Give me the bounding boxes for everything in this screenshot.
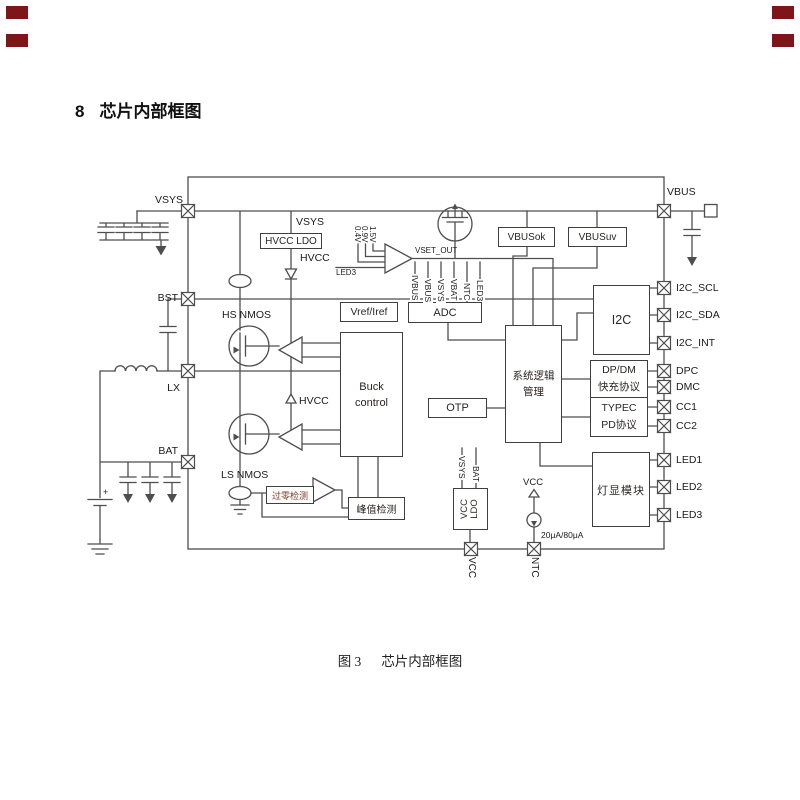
vset-comparator <box>385 244 412 273</box>
pin-vbus <box>658 205 671 218</box>
block-label: I2C <box>612 313 631 327</box>
label-adc-in-ivbus: IVBUS <box>410 274 420 302</box>
label-vccldo-in-vsys: VSYS <box>457 455 467 480</box>
block-label: Vref/Iref <box>351 306 388 318</box>
pin-label-bat: BAT <box>141 445 178 457</box>
pin-vcc <box>465 543 478 556</box>
pin-label-i2c-int: I2C_INT <box>676 337 715 349</box>
pin-dpc <box>658 365 671 378</box>
pin-label-led2: LED2 <box>676 481 702 493</box>
pin-cc2 <box>658 420 671 433</box>
block-i2c: I2C <box>593 285 650 355</box>
block-vcc-ldo: VCC LDO <box>453 488 488 530</box>
pin-led2 <box>658 481 671 494</box>
block-label: ADC <box>433 307 456 319</box>
label-hvcc-ldo-out: HVCC <box>300 252 330 264</box>
label-vccldo-in-bat: BAT <box>471 465 481 483</box>
block-typec-pd-protocol: TYPEC PD协议 <box>590 397 648 437</box>
ls-current-sense <box>229 487 251 500</box>
block-label: 灯显模块 <box>597 482 645 498</box>
label-vset-out: VSET_OUT <box>415 246 457 255</box>
pin-lx <box>182 365 195 378</box>
pin-label-i2c-scl: I2C_SCL <box>676 282 719 294</box>
pin-dmc <box>658 381 671 394</box>
figure-number: 图 3 <box>338 654 362 669</box>
block-label: HVCC LDO <box>265 236 317 247</box>
block-label: 峰值检测 <box>357 501 397 516</box>
pin-label-led3: LED3 <box>676 509 702 521</box>
pin-label-led1: LED1 <box>676 454 702 466</box>
block-hvcc-ldo: HVCC LDO <box>260 233 322 249</box>
hvcc-net-marker <box>286 394 296 403</box>
pin-led1 <box>658 454 671 467</box>
label-hvcc-ldo-in: VSYS <box>296 216 324 228</box>
block-label: PD协议 <box>601 417 637 434</box>
label-adc-in-vbat: VBAT <box>449 278 459 302</box>
label-hvcc-rail: HVCC <box>299 395 329 407</box>
label-adc-in-vsys: VSYS <box>436 278 446 303</box>
block-label: 过零检测 <box>272 489 308 502</box>
block-label: 系统逻辑 <box>513 368 555 384</box>
label-vref-15: 1.5V <box>368 226 377 242</box>
ground-arrow <box>156 246 167 256</box>
block-peak-detect: 峰值检测 <box>348 497 405 520</box>
pin-label-cc1: CC1 <box>676 401 697 413</box>
pin-label-vcc: VCC <box>465 557 477 578</box>
pin-cc1 <box>658 401 671 414</box>
pin-ntc <box>528 543 541 556</box>
pin-bst <box>182 293 195 306</box>
pin-i2c-int <box>658 337 671 350</box>
pin-label-dmc: DMC <box>676 381 700 393</box>
inductor <box>115 366 157 371</box>
block-label: VBUSok <box>508 232 546 243</box>
pin-label-bst: BST <box>141 292 178 304</box>
block-system-logic: 系统逻辑 管理 <box>505 325 562 443</box>
pin-i2c-sda <box>658 309 671 322</box>
figure-caption-text: 芯片内部框图 <box>381 654 462 669</box>
pin-label-ntc: NTC <box>528 557 540 578</box>
block-buck-control: Buck control <box>340 332 403 457</box>
pin-i2c-scl <box>658 282 671 295</box>
label-adc-in-led3: LED3 <box>475 279 485 302</box>
pin-bat <box>182 456 195 469</box>
block-label: VBUSuv <box>579 232 617 243</box>
pin-vsys <box>182 205 195 218</box>
ground-arrow <box>123 494 133 503</box>
block-label: DP/DM <box>602 362 636 379</box>
pin-label-vsys: VSYS <box>146 194 183 206</box>
pin-label-i2c-sda: I2C_SDA <box>676 309 720 321</box>
block-label: 快充协议 <box>598 379 640 396</box>
block-label: Buck <box>359 379 383 395</box>
block-label: control <box>355 395 388 411</box>
label-led3-select: LED3 <box>336 268 356 277</box>
pin-label-vbus: VBUS <box>667 186 696 198</box>
pin-label-lx: LX <box>152 382 180 394</box>
block-vbusok: VBUSok <box>498 227 555 247</box>
block-label: 管理 <box>523 384 544 400</box>
block-label: TYPEC <box>601 400 636 417</box>
block-vref-iref: Vref/Iref <box>340 302 398 322</box>
ground-arrow <box>145 494 155 503</box>
ground-arrow <box>687 257 697 266</box>
figure-caption: 图 3芯片内部框图 <box>280 650 520 670</box>
block-adc: ADC <box>408 302 482 323</box>
block-led-display: 灯显模块 <box>592 452 650 527</box>
vcc-net-marker <box>529 490 539 498</box>
pin-label-dpc: DPC <box>676 365 698 377</box>
label-ntc-current: 20μA/80μA <box>541 530 583 540</box>
ground-arrow <box>167 494 177 503</box>
label-ls-nmos: LS NMOS <box>221 469 268 481</box>
page: 8芯片内部框图 <box>0 0 800 800</box>
label-adc-in-ntc: NTC <box>462 282 472 301</box>
block-vbusuv: VBUSuv <box>568 227 627 247</box>
block-label: OTP <box>446 402 469 414</box>
bootstrap-diode <box>286 269 297 279</box>
label-adc-in-vbus: VBUS <box>423 278 433 303</box>
pin-led3 <box>658 509 671 522</box>
fet-arrow <box>452 204 458 210</box>
block-otp: OTP <box>428 398 487 418</box>
hs-current-sense <box>229 275 251 288</box>
block-vcc-ldo-text: VCC LDO <box>461 499 481 519</box>
block-label: LDO <box>471 499 481 519</box>
label-battery-plus: + <box>103 487 108 497</box>
block-zero-cross-detect: 过零检测 <box>266 486 314 504</box>
pin-label-cc2: CC2 <box>676 420 697 432</box>
block-dpdm-protocol: DP/DM 快充协议 <box>590 360 648 398</box>
vbus-connector-square <box>705 205 718 218</box>
label-hs-nmos: HS NMOS <box>222 309 271 321</box>
zero-cross-comparator <box>313 478 335 502</box>
label-ntc-pullup-vcc: VCC <box>523 477 543 488</box>
